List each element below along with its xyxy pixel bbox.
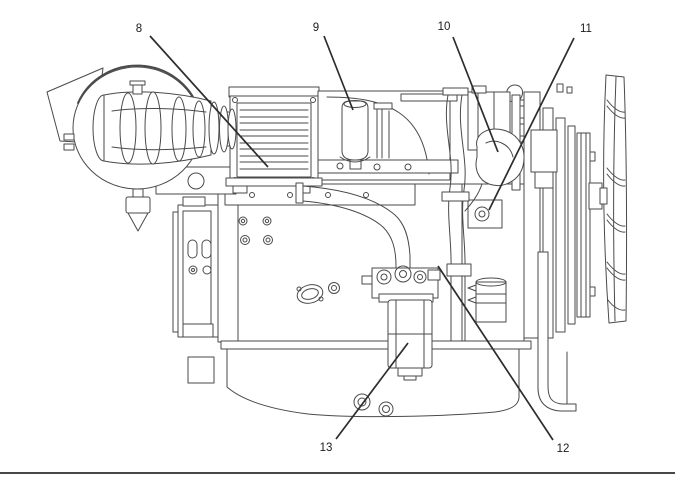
callout-label-8: 8 xyxy=(136,23,142,35)
callout-label-11: 11 xyxy=(580,23,592,35)
callout-leader-12 xyxy=(438,266,553,440)
callout-overlay: 8910111213 xyxy=(0,0,675,483)
footer-rule xyxy=(0,472,675,474)
callout-leader-13 xyxy=(336,343,408,439)
callout-label-13: 13 xyxy=(320,442,333,454)
callout-leader-10 xyxy=(453,37,498,152)
callout-label-12: 12 xyxy=(557,443,570,455)
callout-leader-8 xyxy=(150,36,268,167)
callout-label-10: 10 xyxy=(438,21,451,33)
figure-page: 8910111213 xyxy=(0,0,675,483)
callout-leader-11 xyxy=(489,38,574,210)
callout-leader-9 xyxy=(324,36,353,110)
callout-label-9: 9 xyxy=(313,22,319,34)
